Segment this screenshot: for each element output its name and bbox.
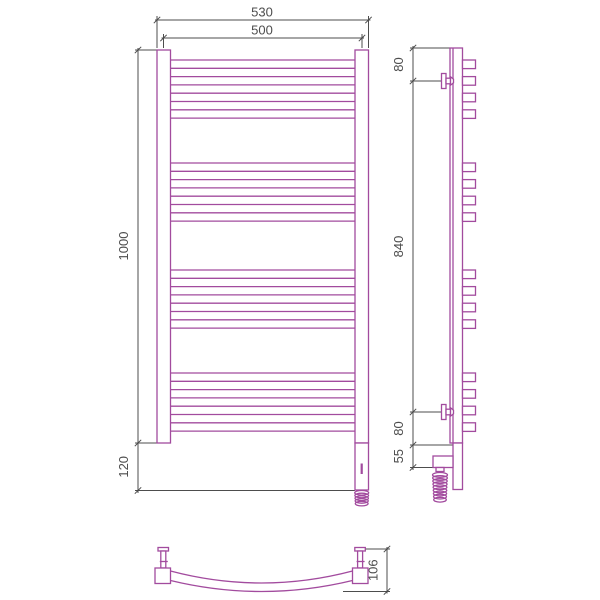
side-heater-box [433, 456, 453, 468]
drawing-page: 530 500 1000 120 [0, 0, 600, 600]
bracket-neck [446, 78, 451, 84]
bar-side-stub [463, 163, 476, 172]
side-collector-tube [450, 48, 463, 443]
bottom-left-collector [155, 548, 171, 584]
bar-side-stub [463, 180, 476, 189]
bar-side-stub [463, 287, 476, 296]
curved-bar-top-edge [171, 571, 353, 583]
front-view: 530 500 1000 120 [116, 5, 372, 506]
bar-side-stub [463, 213, 476, 222]
side-bar-stubs [463, 60, 476, 431]
bracket-cone [451, 77, 454, 85]
dim-label-840: 840 [391, 236, 406, 258]
bar-side-stub [463, 77, 476, 86]
bar-side-stub [463, 373, 476, 382]
bar-side-stub [463, 270, 476, 279]
towel-rail-drawing: 530 500 1000 120 [0, 0, 600, 600]
dim-label-530: 530 [251, 5, 273, 20]
dim-label-55: 55 [391, 449, 406, 463]
bar-side-stub [463, 110, 476, 119]
dim-label-80-bottom: 80 [391, 421, 406, 435]
bracket-cone [451, 408, 454, 416]
side-cable-connector [436, 468, 444, 472]
dim-label-80-top: 80 [391, 57, 406, 71]
bar-side-stub [463, 406, 476, 415]
side-view: 80 840 80 55 [391, 45, 476, 502]
bar-side-stub [463, 93, 476, 102]
curved-bar-bottom-edge [171, 581, 353, 592]
collector-block [353, 568, 369, 584]
bar-side-stub [463, 320, 476, 329]
bracket-neck [446, 409, 451, 415]
fastener-stem [358, 551, 363, 568]
right-post [355, 50, 369, 443]
dim-label-120: 120 [116, 456, 131, 478]
side-power-cable-coil [433, 473, 448, 503]
side-lower-tube [453, 443, 463, 490]
bar-side-stub [463, 423, 476, 432]
towel-bars [171, 60, 356, 431]
bar-side-stub [463, 60, 476, 69]
power-cable-coil [355, 491, 369, 506]
bracket-plate [442, 405, 447, 420]
front-dimensions: 530 500 1000 120 [116, 5, 372, 494]
bar-side-stub [463, 196, 476, 205]
bottom-view: 106 [155, 546, 390, 595]
dim-label-500: 500 [251, 23, 273, 38]
bar-side-stub [463, 390, 476, 399]
collector-block [155, 568, 171, 584]
fastener-stem [161, 551, 166, 568]
left-post [157, 50, 171, 443]
cable-coil-ring [434, 497, 447, 502]
bar-side-stub [463, 303, 476, 312]
dim-label-1000: 1000 [116, 232, 131, 261]
bracket-plate [442, 74, 447, 89]
